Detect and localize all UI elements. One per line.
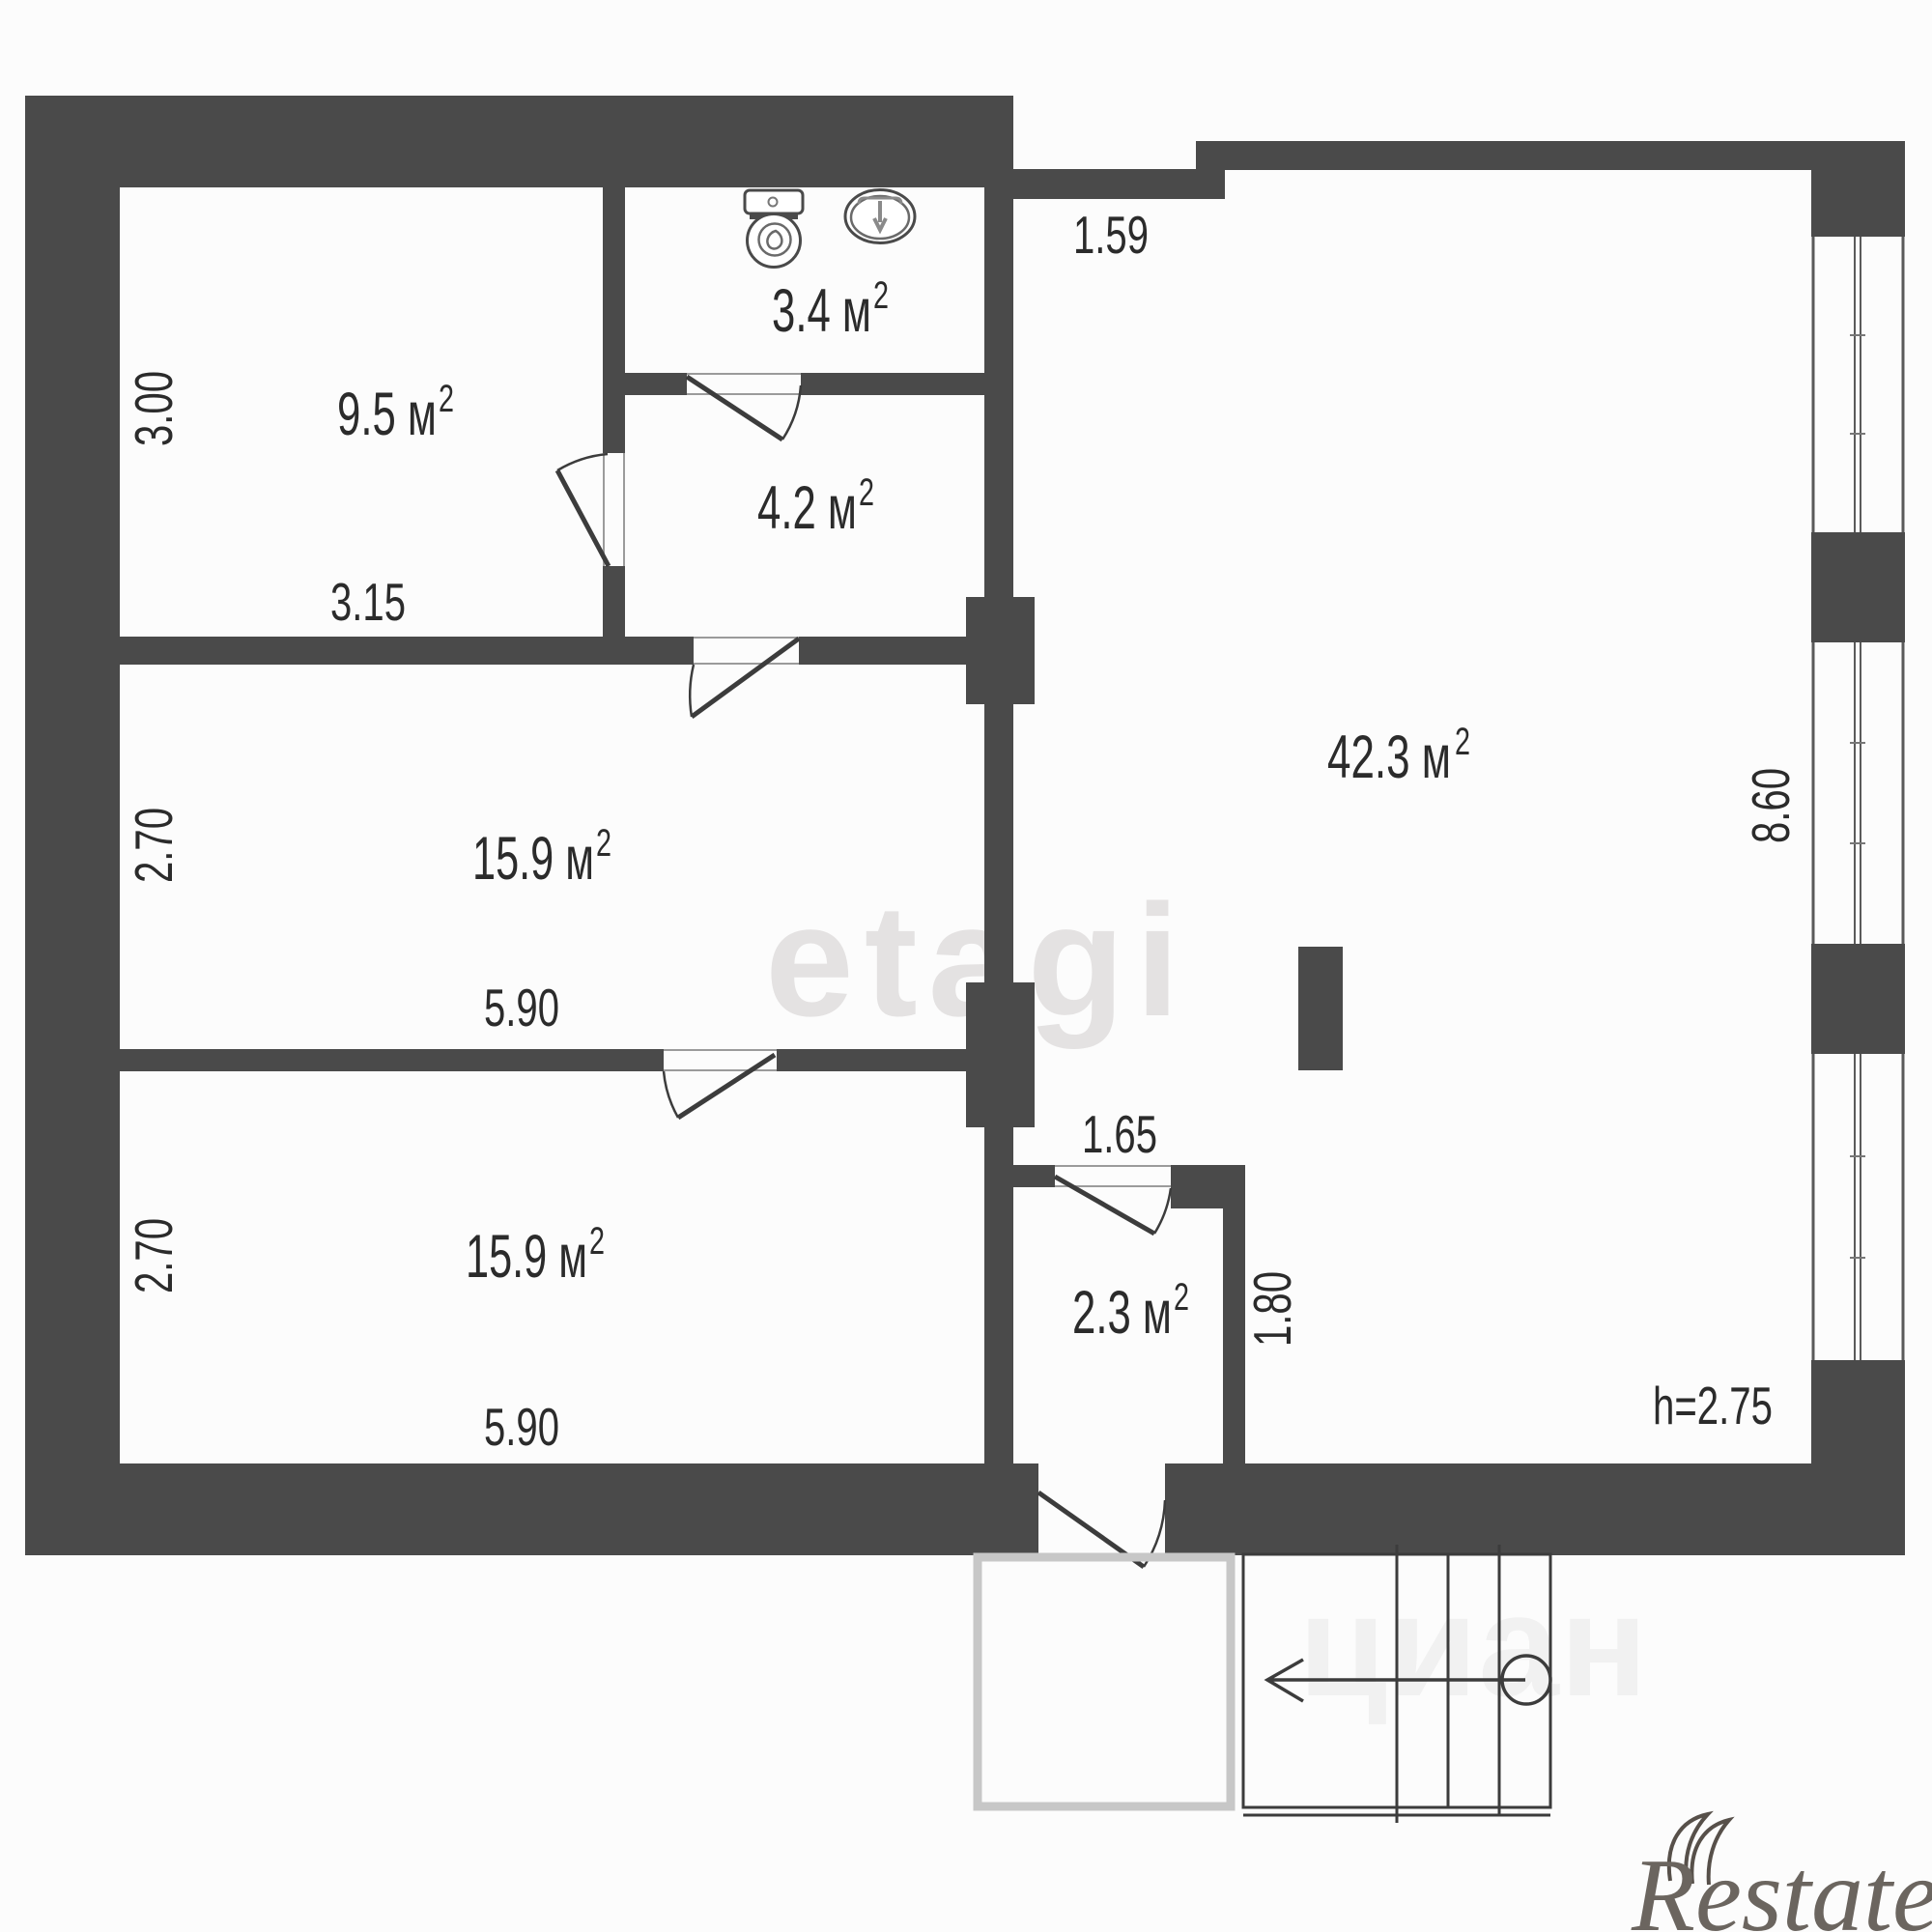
- svg-text:5.90: 5.90: [484, 978, 559, 1037]
- svg-text:2: 2: [1174, 1276, 1189, 1319]
- svg-text:2: 2: [596, 822, 611, 865]
- svg-text:2: 2: [1455, 721, 1470, 763]
- svg-text:4.2 м: 4.2 м: [757, 474, 857, 542]
- svg-text:3.00: 3.00: [124, 371, 184, 446]
- svg-text:циан: циан: [1298, 1564, 1648, 1726]
- svg-text:2: 2: [589, 1220, 605, 1263]
- svg-text:2: 2: [873, 274, 889, 317]
- svg-text:1.80: 1.80: [1242, 1271, 1302, 1347]
- svg-text:h=2.75: h=2.75: [1653, 1376, 1773, 1435]
- svg-text:42.3 м: 42.3 м: [1327, 724, 1451, 791]
- svg-text:2.70: 2.70: [124, 808, 184, 883]
- svg-text:2: 2: [439, 378, 454, 420]
- svg-text:8.60: 8.60: [1741, 768, 1801, 843]
- svg-text:Restate: Restate: [1631, 1838, 1932, 1932]
- svg-text:2.3 м: 2.3 м: [1072, 1279, 1172, 1347]
- svg-text:3.15: 3.15: [330, 572, 406, 632]
- svg-text:1.65: 1.65: [1082, 1104, 1157, 1164]
- svg-text:9.5 м: 9.5 м: [337, 381, 437, 448]
- svg-text:5.90: 5.90: [484, 1397, 559, 1457]
- svg-text:2: 2: [859, 471, 874, 514]
- svg-text:15.9 м: 15.9 м: [466, 1223, 587, 1291]
- svg-text:3.4 м: 3.4 м: [772, 277, 871, 345]
- svg-text:1.59: 1.59: [1073, 205, 1149, 265]
- svg-text:15.9 м: 15.9 м: [472, 825, 594, 893]
- svg-text:2.70: 2.70: [124, 1218, 184, 1293]
